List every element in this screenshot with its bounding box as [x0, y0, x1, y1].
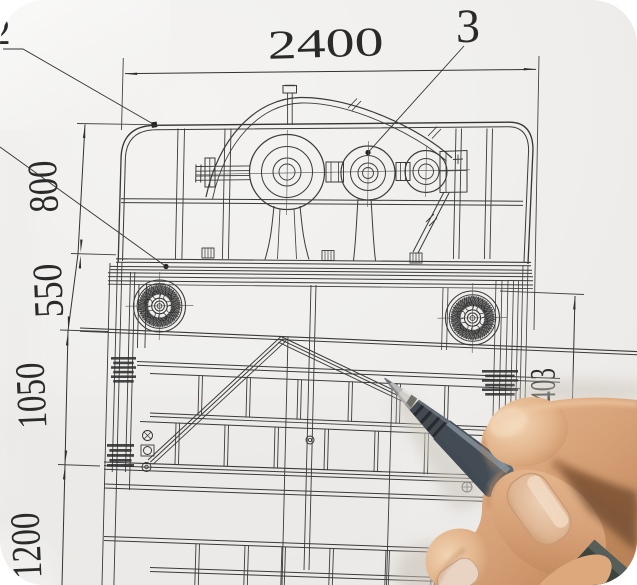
svg-text:2: 2	[0, 11, 11, 53]
svg-text:1050: 1050	[8, 362, 57, 430]
svg-text:2400: 2400	[267, 18, 384, 68]
svg-text:550: 550	[25, 263, 73, 319]
svg-text:1200: 1200	[3, 512, 52, 580]
svg-text:3: 3	[456, 0, 480, 53]
svg-text:800: 800	[20, 160, 68, 214]
